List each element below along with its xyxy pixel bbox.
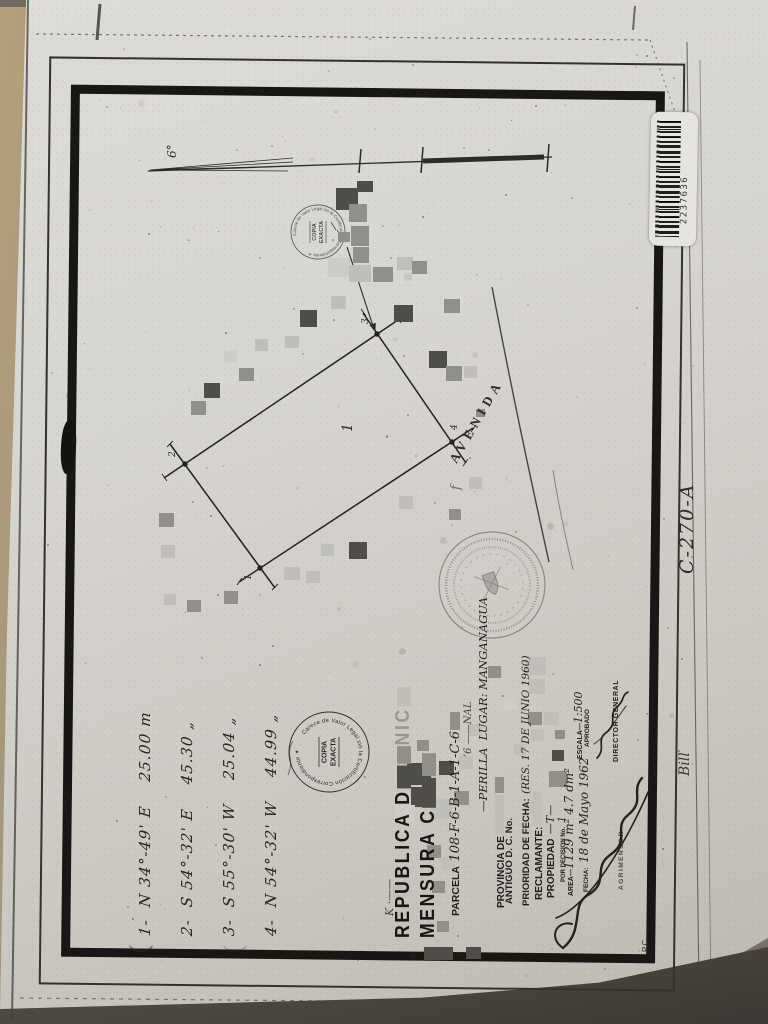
agrimensor-label: AGRIMENSOR [618, 830, 625, 890]
pc-annotation: P.C. [641, 937, 650, 952]
north-angle-label: 6° [165, 144, 179, 158]
redaction-tile [394, 305, 413, 322]
redaction-tile [412, 261, 427, 274]
fragment-nal: ’6 ——NAL [463, 702, 474, 757]
redaction-tile [239, 368, 254, 381]
redaction-tile [204, 383, 220, 398]
redaction-tile [399, 496, 413, 509]
redaction [495, 777, 504, 793]
bearing-row: 1- N 34°-49' E 25.00 m [136, 710, 154, 937]
redaction-tile [161, 545, 175, 558]
redaction-tile [397, 257, 413, 270]
redaction-tile [331, 296, 346, 309]
redaction-tile [349, 204, 367, 222]
barcode-number: 2237636 [679, 176, 690, 225]
antiguo-line: ANTIGUO D. C. No. [504, 818, 515, 904]
bearing-row: 3- S 55°-30' W 25.04 „ [220, 715, 238, 937]
redaction-tile [353, 247, 369, 263]
lugar-line: —PERILLA LUGAR: MANGANAGUA [476, 597, 490, 812]
redaction-tile [349, 542, 367, 559]
redaction [422, 778, 436, 808]
title-block: REPUBLICA DNIC MENSURA C PARCELA 108-F-6… [388, 632, 628, 962]
redaction [397, 746, 411, 764]
redaction-tile [306, 571, 320, 583]
redaction-tile [373, 267, 393, 282]
redaction-tile [284, 567, 300, 580]
redaction-tile [446, 366, 462, 381]
redaction-tile [191, 401, 206, 415]
k-fragment-annotation: K ·—— [383, 879, 396, 916]
redaction-tile [255, 339, 268, 351]
title-line-mensura: MENSURA C [417, 752, 440, 938]
redaction [397, 687, 411, 706]
photographed-survey-document: 1 2 3 4 1 f Carece de Valor Legal sin la… [0, 0, 768, 1024]
redaction [450, 712, 460, 730]
redaction-tile [338, 232, 350, 242]
barcode-sticker: 2237636 [649, 112, 698, 247]
fecha-line: FECHA: 18 de Mayo 1962 [575, 758, 593, 893]
barcode-bars [655, 121, 681, 237]
director-general-label: DIRECTOR GENERAL [613, 680, 620, 762]
redaction-tile [300, 310, 317, 327]
redaction-tile [349, 265, 371, 282]
redaction-tile [351, 226, 369, 246]
bearing-row: 2- S 54°-32' E 45.30 „ [178, 720, 196, 937]
bearing-row: 4- N 54°-32' W 44.99 „ [262, 712, 280, 937]
redaction-tile [187, 600, 201, 612]
redaction-tile [328, 258, 350, 277]
redaction-tile [285, 336, 299, 348]
parcela-line: PARCELA 108-F-6-B-1-A-1-C-6 [446, 711, 464, 916]
bearings-table: ( ( 1- N 34°-49' E 25.00 m 2- S 54°-32' … [134, 695, 309, 950]
redaction [422, 753, 436, 776]
aprobado-label: APROBADO [584, 709, 591, 747]
brace-mark: ( [220, 944, 250, 954]
redaction-tile [224, 351, 237, 362]
bill-annotation: Bill [677, 752, 693, 776]
redaction-tile [444, 299, 460, 313]
redaction-tile [164, 594, 176, 605]
redaction [495, 795, 504, 835]
redaction-tile [464, 366, 477, 378]
redaction-tile [469, 477, 482, 489]
redaction [397, 766, 411, 789]
redaction-tile [224, 591, 238, 604]
redaction-tile [449, 509, 461, 520]
redaction-tile [321, 544, 334, 556]
redaction-tile [429, 351, 447, 368]
side-code-annotation: C-270-A [676, 483, 698, 574]
brace-mark: ( [126, 944, 156, 954]
redaction-tile [159, 513, 174, 527]
redaction-tile [357, 181, 373, 192]
